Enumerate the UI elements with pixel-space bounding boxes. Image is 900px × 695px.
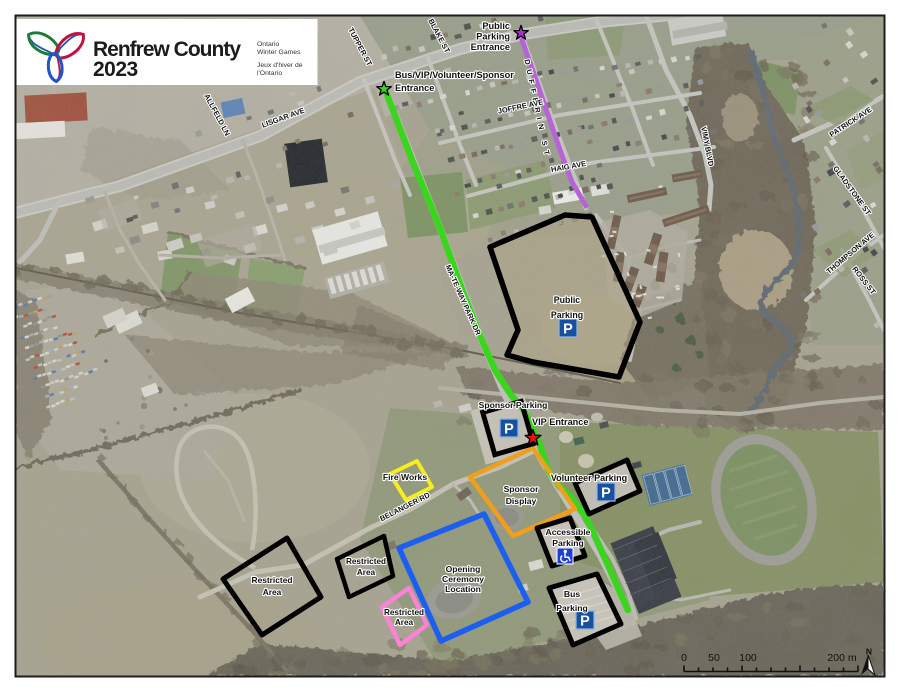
svg-text:0: 0	[681, 652, 687, 664]
svg-text:VIP Entrance: VIP Entrance	[532, 417, 589, 427]
svg-text:Restricted: Restricted	[346, 557, 386, 566]
svg-text:N: N	[866, 647, 872, 657]
svg-text:Entrance: Entrance	[471, 42, 510, 52]
svg-text:Parking: Parking	[552, 538, 584, 548]
svg-text:Area: Area	[263, 587, 282, 597]
svg-text:Area: Area	[395, 618, 414, 627]
svg-text:Parking: Parking	[551, 310, 583, 320]
svg-text:Ontario: Ontario	[257, 41, 280, 48]
svg-text:Bus: Bus	[564, 589, 580, 599]
svg-text:Sponsor Parking: Sponsor Parking	[479, 400, 548, 410]
svg-text:l'Ontario: l'Ontario	[257, 70, 282, 77]
svg-text:Bus/VIP/Volunteer/Sponsor: Bus/VIP/Volunteer/Sponsor	[395, 70, 514, 80]
svg-text:Area: Area	[357, 568, 376, 577]
svg-text:Fire Works: Fire Works	[383, 472, 427, 482]
svg-text:100: 100	[739, 652, 757, 664]
svg-text:Restricted: Restricted	[252, 575, 293, 585]
svg-text:Display: Display	[506, 496, 537, 506]
svg-text:Sponsor: Sponsor	[504, 484, 540, 494]
svg-text:Jeux d'hiver de: Jeux d'hiver de	[257, 62, 303, 69]
svg-text:Volunteer Parking: Volunteer Parking	[551, 473, 627, 483]
svg-text:Parking: Parking	[476, 32, 510, 42]
svg-text:Winter Games: Winter Games	[257, 49, 301, 56]
svg-text:Restricted: Restricted	[384, 608, 424, 617]
svg-text:Entrance: Entrance	[395, 83, 434, 93]
svg-text:Opening: Opening	[446, 564, 481, 574]
svg-text:200 m: 200 m	[827, 652, 856, 664]
svg-text:2023: 2023	[93, 58, 138, 81]
svg-text:Parking: Parking	[556, 603, 588, 613]
svg-text:Public: Public	[554, 295, 581, 305]
svg-text:Public: Public	[482, 21, 510, 31]
svg-text:Ceremony: Ceremony	[442, 574, 484, 584]
svg-text:Location: Location	[445, 584, 481, 594]
svg-text:Accessible: Accessible	[546, 527, 591, 537]
svg-text:50: 50	[708, 652, 720, 664]
